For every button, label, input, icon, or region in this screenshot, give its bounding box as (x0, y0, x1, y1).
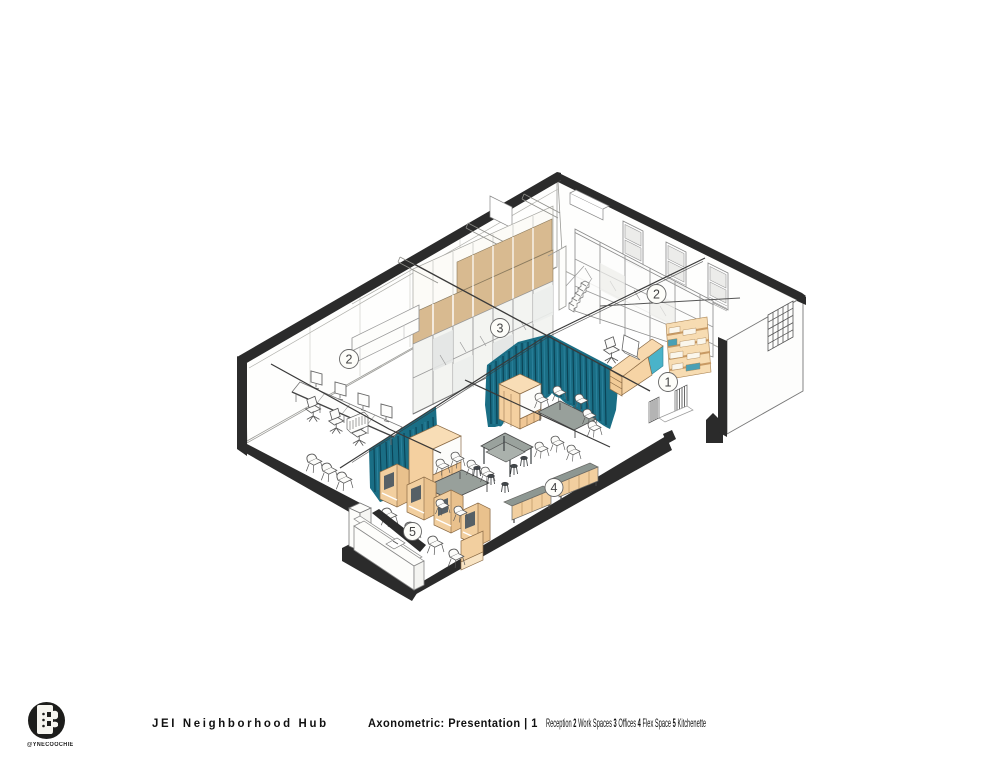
svg-text:3: 3 (497, 322, 504, 336)
svg-text:2: 2 (653, 288, 660, 302)
svg-text:5: 5 (409, 525, 416, 539)
svg-text:2: 2 (346, 353, 353, 367)
svg-text:1: 1 (665, 376, 672, 390)
svg-text:4: 4 (551, 481, 558, 495)
